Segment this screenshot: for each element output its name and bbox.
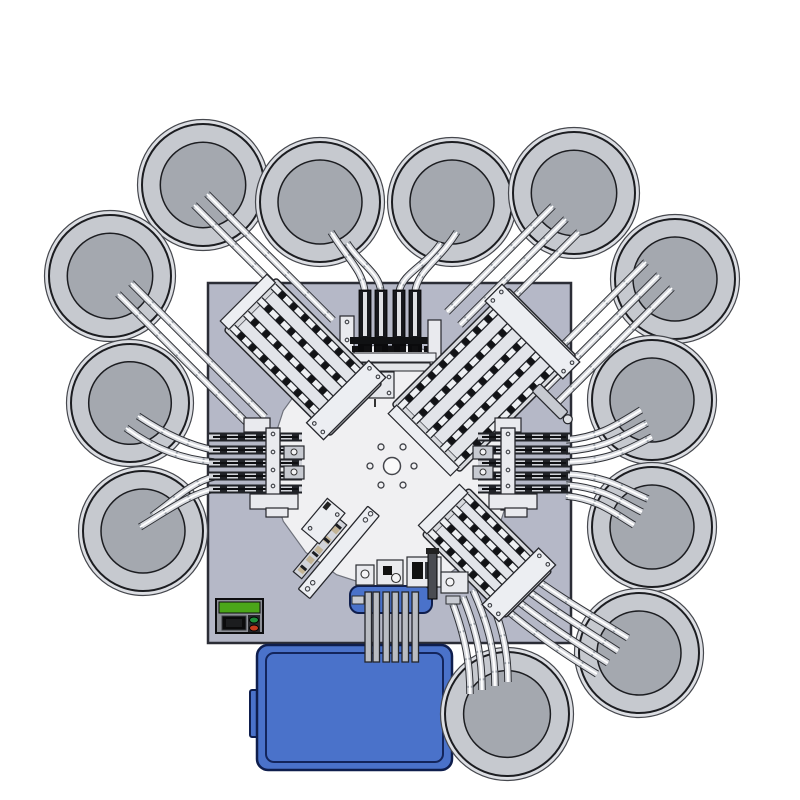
press-rail-slot xyxy=(379,292,383,336)
gripper-pin xyxy=(291,449,297,455)
gripper-pin xyxy=(291,469,297,475)
cabinet-rail xyxy=(365,592,372,662)
gripper-pin xyxy=(480,469,486,475)
bowl-feeder xyxy=(67,340,194,467)
hub-bolt xyxy=(367,463,373,469)
cabinet-rail xyxy=(392,592,399,662)
rotary-assembly-machine-drawing xyxy=(0,0,800,800)
gripper-pin xyxy=(480,449,486,455)
bowl-feeder xyxy=(45,211,176,342)
bowl-interior xyxy=(610,358,694,442)
hub-bolt xyxy=(378,482,384,488)
foot-bracket xyxy=(489,494,537,509)
cabinet-body xyxy=(257,645,452,770)
detail-block xyxy=(383,566,392,575)
foot-bracket xyxy=(250,494,298,509)
hub-bolt xyxy=(400,482,406,488)
stop-button xyxy=(250,625,259,631)
hub-bore xyxy=(384,458,401,475)
pivot-pin xyxy=(392,574,401,583)
press-rail-slot xyxy=(363,292,367,336)
cross-bar xyxy=(350,337,432,344)
bowl-interior xyxy=(531,150,616,235)
foot-stub xyxy=(266,508,288,517)
foot xyxy=(446,596,460,604)
slide-bar-1 xyxy=(348,353,436,362)
cabinet-rail xyxy=(412,592,419,662)
cabinet-rail xyxy=(383,592,390,662)
bowl-interior xyxy=(410,160,494,244)
control-panel xyxy=(216,599,263,633)
foot-stub xyxy=(505,508,527,517)
hub-bolt xyxy=(378,444,384,450)
pivot-pin xyxy=(446,578,454,586)
press-rail-slot xyxy=(397,292,401,336)
hub-bolt xyxy=(400,444,406,450)
bowl-interior xyxy=(278,160,362,244)
cabinet-rail xyxy=(402,592,409,662)
foot xyxy=(352,596,364,604)
lcd-display xyxy=(219,602,260,613)
detail-block xyxy=(412,562,423,579)
keypad-window xyxy=(226,619,242,627)
pivot-pin xyxy=(361,570,369,578)
vertical-post xyxy=(428,552,437,599)
post-cap xyxy=(426,548,439,554)
start-button xyxy=(250,617,259,623)
bowl-interior xyxy=(633,237,717,321)
bowl-interior xyxy=(464,671,551,758)
press-rail-slot xyxy=(413,292,417,336)
machine-layout-diagram xyxy=(0,0,800,800)
bowl-feeder xyxy=(388,138,517,267)
hub-bolt xyxy=(411,463,417,469)
cabinet-rail xyxy=(373,592,380,662)
bowl-feeder xyxy=(256,138,385,267)
bowl-interior xyxy=(67,233,152,318)
